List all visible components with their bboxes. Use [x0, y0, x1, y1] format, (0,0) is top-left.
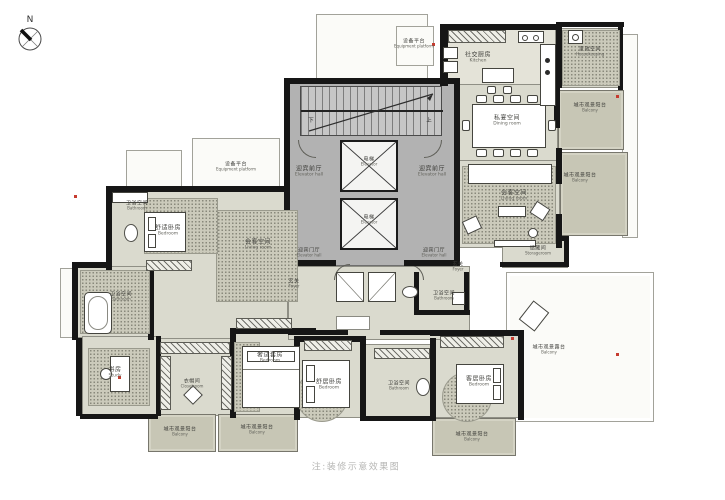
label-en: Dining room [493, 122, 521, 127]
kitchen-sink [518, 31, 544, 43]
toilet [416, 378, 430, 396]
room-label-storage: 储藏间Storageroom [525, 246, 551, 257]
pillow [493, 385, 501, 400]
room-label-balcony-bl2: 城市观景阳台Balcony [240, 425, 273, 436]
dining-chair [510, 149, 521, 157]
label-en: Bedroom [316, 386, 342, 391]
room-label-bathroom-core-right: 卫浴空间Bathroom [433, 291, 455, 302]
label-en: Foyer [452, 268, 463, 273]
label-en: Balcony [163, 433, 196, 438]
pillow [306, 386, 315, 403]
dining-chair [462, 120, 470, 131]
stair-up-label: 上 [426, 116, 432, 124]
room-label-study: 书房Study [108, 367, 121, 380]
wall [360, 342, 366, 420]
wardrobe-master [236, 318, 292, 329]
pillow [306, 365, 315, 382]
label-en: Balcony [573, 109, 606, 114]
room-label-equipment-platform-top: 设备平台Equipment platform [394, 39, 434, 50]
room-label-bedroom-master: 奢适套房Bedroom [257, 352, 283, 365]
room-label-elevator-1: 电梯Elevator [361, 157, 378, 168]
staircase [300, 86, 442, 136]
foyer-mat [336, 316, 370, 330]
dining-chair [493, 95, 504, 103]
room-label-bathroom-top-left: 卫浴空间Bathroom [126, 201, 148, 212]
balcony-top-right-2 [560, 152, 628, 236]
dining-chair [510, 95, 521, 103]
label-en: Living room [501, 197, 527, 202]
compass-north-label: N [27, 15, 34, 25]
wall [556, 214, 562, 248]
red-marker [616, 95, 619, 98]
label-en: Bedroom [466, 383, 492, 388]
label-en: Balcony [240, 431, 273, 436]
room-label-bathroom-bottom: 卫浴空间Bathroom [388, 381, 410, 392]
washer [568, 30, 583, 44]
stair-arrow [301, 87, 443, 137]
toilet [402, 286, 418, 298]
label-en: Equipment platform [394, 45, 434, 50]
vanity-bathroom-bottom [374, 348, 430, 359]
sink-bowl [522, 35, 528, 41]
wardrobe-bedroom-mid [304, 340, 352, 351]
coffee-table [498, 206, 526, 217]
label-en: Bedroom [155, 232, 181, 237]
wardrobe-closet-top [160, 342, 230, 354]
label-en: Elevator hall [421, 254, 446, 259]
building-outline-topleft [126, 150, 182, 190]
dining-chair [476, 149, 487, 157]
label-en: Balcony [532, 351, 565, 356]
room-label-bedroom-top-left: 舒适卧房Bedroom [155, 225, 181, 238]
stool [528, 228, 538, 238]
room-label-dining: 私宴空间Dining room [493, 115, 521, 128]
room-label-equipment-platform-left: 设备平台Equipment platform [216, 162, 256, 173]
dining-chair [476, 95, 487, 103]
kitchen-island [482, 68, 514, 83]
label-en: Bathroom [388, 387, 410, 392]
label-en: Bathroom [433, 297, 455, 302]
blanket-line [243, 369, 299, 370]
dining-chair [527, 95, 538, 103]
label-en: Elevator hall [418, 173, 446, 178]
foyer-cabinet [368, 272, 396, 302]
wall [288, 330, 348, 335]
label-en: Study [108, 374, 121, 379]
red-marker [511, 337, 514, 340]
room-label-bedroom-right: 客居卧房Bedroom [466, 376, 492, 389]
wall [430, 338, 436, 420]
room-label-balcony-bl1: 城市观景阳台Balcony [163, 427, 196, 438]
foyer-cabinet [336, 272, 364, 302]
room-label-elevator-2: 电梯Elevator [361, 215, 378, 226]
wall [380, 330, 436, 335]
label-en: Balcony [455, 438, 488, 443]
room-label-reception-left: 迎宾门厅Elevator hall [296, 248, 321, 259]
label-en: Bedroom [257, 359, 283, 364]
toilet [124, 224, 138, 242]
label-en: Elevator hall [295, 173, 323, 178]
wardrobe-closet-right [221, 356, 232, 410]
room-label-living-right: 会客空间Living room [501, 190, 527, 203]
room-label-bedroom-mid: 舒居卧房Bedroom [316, 379, 342, 392]
wall [76, 338, 82, 416]
rug-family-room [216, 210, 298, 302]
wall [72, 262, 78, 340]
pillow [493, 368, 501, 383]
wall [564, 236, 569, 267]
label-en: Closetroom [181, 385, 204, 390]
dining-chair [493, 149, 504, 157]
sofa [468, 164, 552, 184]
room-label-closet: 衣帽间Closetroom [181, 379, 204, 390]
balcony-top-right-1 [558, 90, 624, 150]
room-label-terrace: 城市观景露台Balcony [532, 345, 565, 356]
label-en: Bathroom [126, 207, 148, 212]
room-label-balcony-tr2: 城市观景阳台Balcony [563, 173, 596, 184]
stove-burner [545, 70, 550, 75]
red-marker [74, 195, 77, 198]
wall [80, 414, 158, 419]
room-label-housekeeping: 家政空间Housekeeping [576, 47, 604, 58]
plan-caption: 注:装修示意效果图 [312, 460, 401, 473]
wall [414, 310, 470, 315]
room-label-reception-right: 迎宾门厅Elevator hall [421, 248, 446, 259]
red-marker [616, 353, 619, 356]
room-label-balcony-br: 城市观景阳台Balcony [455, 432, 488, 443]
kitchen-counter-right [540, 44, 556, 106]
wall [284, 78, 460, 84]
wall [72, 262, 110, 268]
label-en: Balcony [563, 179, 596, 184]
label-en: Elevator [361, 163, 378, 168]
room-label-elevator-hall-right: 迎宾前厅Elevator hall [418, 166, 446, 179]
wall [556, 148, 562, 184]
floor-plan-canvas: N 下 上 [0, 0, 725, 500]
dining-chair [527, 149, 538, 157]
label-en: Kitchen [465, 59, 491, 64]
terrace-area [506, 272, 654, 422]
wall [500, 262, 568, 267]
wall [558, 22, 624, 27]
label-en: Living room [245, 246, 271, 251]
room-label-balcony-tr1: 城市观景阳台Balcony [573, 103, 606, 114]
label-en: Elevator [361, 221, 378, 226]
label-en: Equipment platform [216, 168, 256, 173]
washer-drum [572, 34, 579, 41]
stair-down-label: 下 [308, 116, 314, 124]
label-en: Foyer [288, 285, 299, 290]
bar-stool [487, 86, 496, 94]
bathtub-inner [88, 296, 108, 330]
stove-burner [545, 58, 550, 63]
label-en: Bathroom [110, 298, 132, 303]
room-label-bathroom-left: 卫浴空间Bathroom [110, 292, 132, 303]
wardrobe-closet-left [160, 356, 171, 410]
cabinet-x-icon [337, 273, 363, 301]
dining-chair [548, 120, 556, 131]
dresser-bedroom-top-left [146, 260, 192, 271]
room-label-kitchen: 社交厨房Kitchen [465, 52, 491, 65]
wall [360, 416, 436, 421]
bar-stool [503, 86, 512, 94]
cabinet-x-icon [369, 273, 395, 301]
compass-icon: N [8, 8, 54, 60]
fridge [443, 61, 458, 73]
room-label-elevator-hall-left: 迎宾前厅Elevator hall [295, 166, 323, 179]
wardrobe-bedroom-right [440, 336, 504, 348]
room-label-foyer-right: 玄关Foyer [452, 262, 463, 273]
wall [518, 330, 524, 420]
sink-bowl [533, 35, 539, 41]
label-en: Elevator hall [296, 254, 321, 259]
label-en: Housekeeping [576, 53, 604, 58]
room-label-foyer-left: 玄关Foyer [288, 279, 299, 290]
bathtub [84, 292, 112, 334]
fridge [443, 47, 458, 59]
room-label-family-room-left: 会客空间Living room [245, 239, 271, 252]
wall [454, 78, 460, 266]
kitchen-counter-hatch [448, 30, 506, 43]
label-en: Storageroom [525, 252, 551, 257]
